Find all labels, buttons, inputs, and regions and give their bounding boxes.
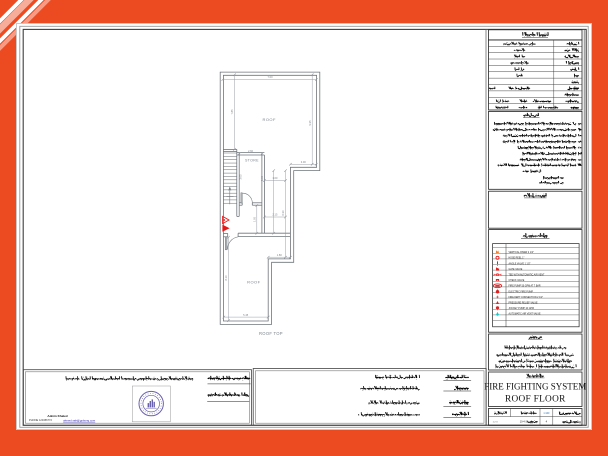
svg-text:TEE WITH AUTOMATIC AIR VENT: TEE WITH AUTOMATIC AIR VENT <box>509 274 545 277</box>
svg-text:3.00: 3.00 <box>301 160 307 164</box>
svg-text:AUTOMATIC AIR VENT VALVE: AUTOMATIC AIR VENT VALVE <box>509 313 542 316</box>
svg-text:6.30: 6.30 <box>281 210 285 216</box>
svg-text:ROOF TOP: ROOF TOP <box>259 331 283 336</box>
svg-text:1.80: 1.80 <box>277 253 283 257</box>
svg-text:GATE VALVE: GATE VALVE <box>509 268 523 271</box>
svg-text:8.10: 8.10 <box>224 275 228 281</box>
svg-text:JOCKEY PUMP 10 GPM: JOCKEY PUMP 10 GPM <box>509 308 535 310</box>
svg-text:PHONE 123456772: PHONE 123456772 <box>29 418 52 422</box>
svg-text:ROOF: ROOF <box>263 117 276 122</box>
svg-text:9.35: 9.35 <box>308 120 312 126</box>
svg-text:1 2 3: 1 2 3 <box>493 422 499 424</box>
svg-text:2.60: 2.60 <box>248 149 254 153</box>
svg-text:FIRE DEPT CONNECTION 2 1/2": FIRE DEPT CONNECTION 2 1/2" <box>509 297 544 299</box>
svg-text:7.85: 7.85 <box>230 109 234 115</box>
svg-text:FIRE PUMP 50 GPM AT 7 BAR: FIRE PUMP 50 GPM AT 7 BAR <box>509 285 541 288</box>
svg-text:Admin Khaled: Admin Khaled <box>47 414 67 418</box>
svg-text:ROOF FLOOR: ROOF FLOOR <box>505 395 566 405</box>
svg-text:1.60: 1.60 <box>272 176 278 180</box>
svg-text:ahmed.sah@gobonq.com: ahmed.sah@gobonq.com <box>63 418 96 422</box>
svg-text:7.00: 7.00 <box>267 75 273 79</box>
svg-text:ELECTRIC FIRE PUMP: ELECTRIC FIRE PUMP <box>509 291 534 293</box>
svg-text:10-4-30: 10-4-30 <box>520 421 529 424</box>
svg-text:2.15: 2.15 <box>272 213 278 217</box>
svg-text:4: 4 <box>546 420 548 424</box>
svg-text:FIRE FIGHTING SYSTEM: FIRE FIGHTING SYSTEM <box>484 382 586 392</box>
svg-text:5.45: 5.45 <box>243 313 249 317</box>
svg-text:VERTICAL RISER 2 1/2": VERTICAL RISER 2 1/2" <box>509 251 535 254</box>
svg-text:ANGLE VALVE 1 1/2": ANGLE VALVE 1 1/2" <box>509 262 531 265</box>
svg-text:ROOF: ROOF <box>247 280 260 285</box>
svg-text:1:100: 1:100 <box>543 412 550 415</box>
svg-text:3.05: 3.05 <box>260 175 264 181</box>
svg-text:STORE: STORE <box>245 159 259 163</box>
svg-text:HOSE REEL 1": HOSE REEL 1" <box>509 258 525 260</box>
svg-text:1.05: 1.05 <box>252 216 256 222</box>
svg-text:CHECK VALVE: CHECK VALVE <box>509 279 525 282</box>
svg-text:PRESSURE RELIEF VALVE: PRESSURE RELIEF VALVE <box>509 302 538 305</box>
svg-text:3.05: 3.05 <box>238 174 242 180</box>
